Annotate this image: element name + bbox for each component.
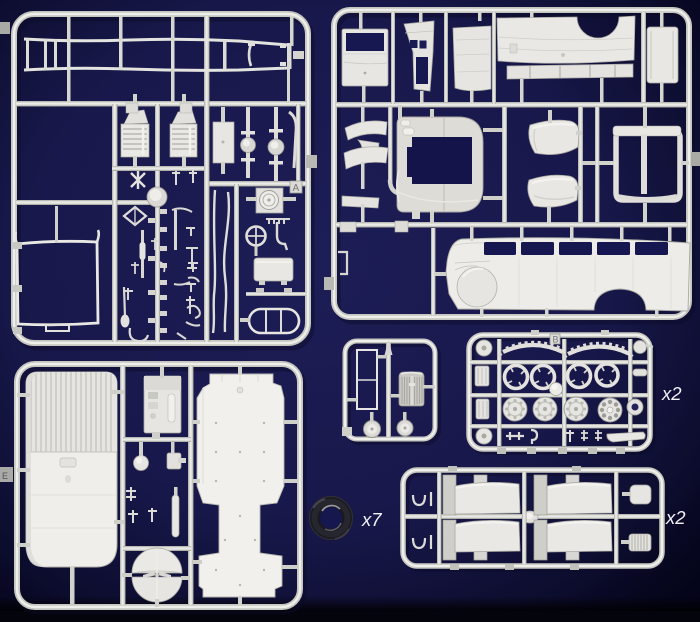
svg-text:B: B <box>553 335 559 345</box>
svg-text:A: A <box>293 183 300 194</box>
svg-text:x7: x7 <box>361 509 382 530</box>
svg-text:x2: x2 <box>665 507 686 528</box>
svg-text:x2: x2 <box>661 383 682 404</box>
svg-text:E: E <box>2 471 8 481</box>
